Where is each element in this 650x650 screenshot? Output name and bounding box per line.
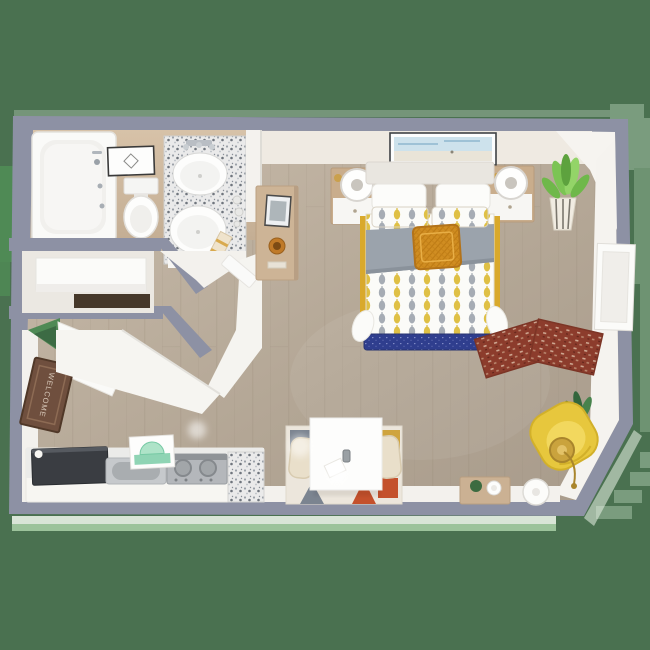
mustard-throw-pillow [413,224,462,269]
console-table [256,186,298,280]
floor-plan-render: WELCOME [0,0,650,650]
toiletry-bottle-icon [233,196,241,204]
pillow-white-right [436,184,490,210]
light-glare [328,465,346,483]
pillow-white-left [372,184,426,210]
bathroom-wall-art [108,146,155,176]
soda-can [343,450,350,462]
accent-pillow-right [432,207,488,227]
headboard [366,162,494,184]
accent-pillow-left [372,207,428,227]
toilet [124,178,158,238]
wood-side-table [460,477,510,504]
double-sink-vanity [164,136,246,268]
refrigerator [31,447,108,486]
stove [167,454,227,484]
small-plant-icon [470,480,482,492]
beach-wall-art [390,133,496,165]
leaning-white-panel [594,243,635,330]
closet-shelf [36,258,146,292]
bathtub [32,132,116,242]
light-glare [289,435,311,457]
desk-set [286,418,402,504]
burner-icon [175,460,191,476]
mint-art-print [129,435,175,469]
photo-frame [265,195,291,227]
burner-icon [200,460,216,476]
round-white-table [523,479,549,505]
tub-faucet-icon [94,159,100,165]
closet-rod-shadow [74,294,150,308]
light-glare [188,421,206,439]
closet [22,251,154,313]
granite-counter [228,452,264,502]
floor-plan-page: WELCOME [0,0,650,650]
book [268,262,286,268]
